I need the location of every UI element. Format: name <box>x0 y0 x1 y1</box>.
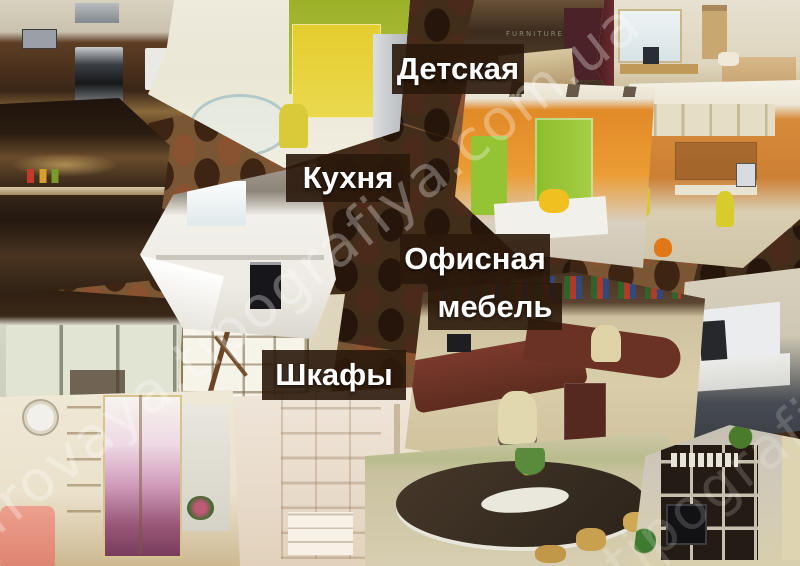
bed-pillow <box>718 52 738 66</box>
stainless-oven <box>75 47 123 107</box>
microwave <box>22 29 58 48</box>
table-flowers <box>515 448 546 483</box>
corner-shelf <box>702 5 726 59</box>
office-chair-back <box>591 325 621 362</box>
photo-wardrobe-magnolia <box>0 390 240 566</box>
yellow-cabinets <box>292 24 381 118</box>
desk-pedestal <box>564 383 606 440</box>
wall-clock <box>22 399 60 436</box>
kitchen-counter <box>0 187 170 195</box>
computer-desk <box>620 64 698 75</box>
category-label-office-line2: мебель <box>428 283 562 330</box>
laptop <box>447 334 471 352</box>
counter-bottles <box>27 169 71 183</box>
category-label-wardrobes: Шкафы <box>262 350 406 400</box>
range-hood <box>75 3 119 23</box>
beige-side-panel <box>782 433 800 560</box>
office-monitor <box>699 320 727 361</box>
orange-bag <box>654 238 672 257</box>
wooden-stool <box>576 528 607 551</box>
yellow-pillow <box>539 189 569 213</box>
category-label-children-room: Детская <box>392 44 524 94</box>
open-shelf-unit <box>67 406 101 536</box>
yellow-desk-chair <box>716 191 734 227</box>
photo-kitchen-wenge <box>0 98 170 296</box>
pink-armchair <box>0 506 55 566</box>
furniture-collage-poster: FURNITURE <box>0 0 800 566</box>
black-built-in-oven <box>250 262 281 310</box>
kitchen-window <box>187 181 246 227</box>
shelf-monitor <box>666 504 707 545</box>
flower-pot <box>187 496 213 521</box>
glass-table <box>190 94 290 157</box>
closet-drawers <box>288 512 353 555</box>
category-label-kitchen: Кухня <box>286 154 410 202</box>
worktop-line <box>156 255 325 260</box>
computer-monitor <box>643 47 659 64</box>
wardrobe-door-split <box>139 395 141 553</box>
desktop-monitor <box>736 163 756 188</box>
binder-row <box>671 453 738 467</box>
category-label-office-line1: Офисная <box>400 234 550 284</box>
yellow-chair <box>279 104 308 148</box>
office-chair-front <box>498 391 537 444</box>
magnolia-print-wardrobe <box>103 395 181 557</box>
wooden-stool <box>535 545 566 564</box>
